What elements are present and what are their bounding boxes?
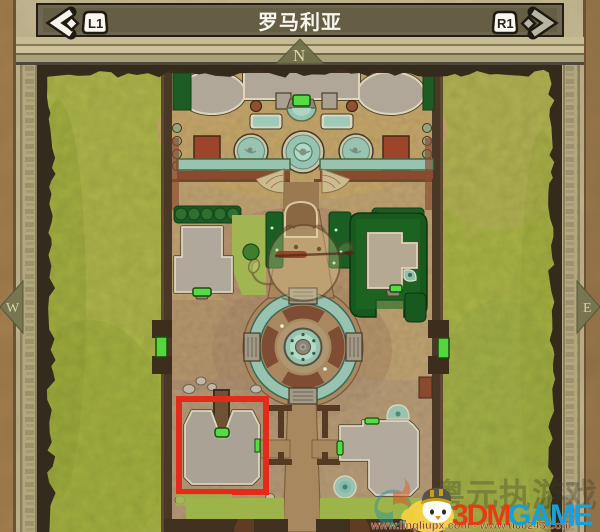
svg-text:N: N xyxy=(293,46,305,65)
svg-text:E: E xyxy=(583,301,592,316)
svg-text:W: W xyxy=(6,301,20,316)
svg-text:罗马利亚: 罗马利亚 xyxy=(258,11,342,34)
svg-text:3DM: 3DM xyxy=(452,499,509,532)
svg-text:GAME: GAME xyxy=(508,499,592,532)
svg-text:R1: R1 xyxy=(497,16,514,31)
svg-text:L1: L1 xyxy=(88,16,103,31)
